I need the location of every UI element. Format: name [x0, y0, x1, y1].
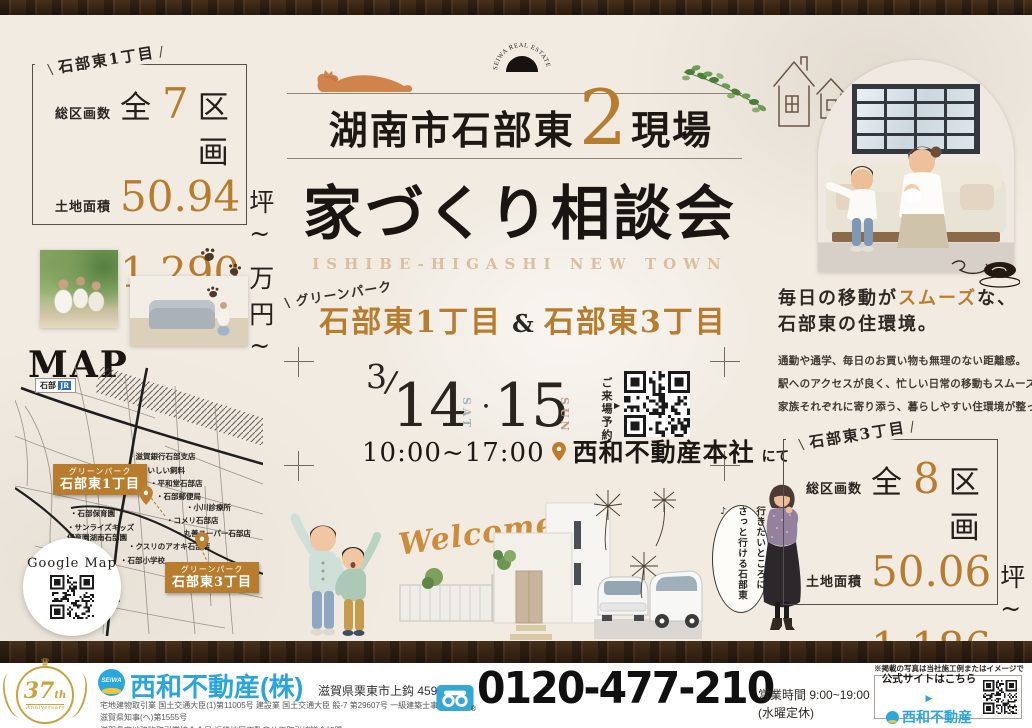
official-site-label: 公式サイトはこちら — [882, 673, 977, 685]
site1-label-text: 石部東1丁目 — [57, 43, 156, 76]
sites-names-row: 石部東1丁目&石部東3丁目 — [288, 297, 758, 341]
site1-area-row: 土地面積50.94坪~ — [55, 172, 240, 248]
area-value: 50.94 — [120, 172, 240, 221]
site3-info-box: \石部東3丁目/ 総区画数全8区画 土地面積50.06坪~ 土地価格1,186万… — [783, 439, 998, 605]
site3-label-text: 石部東3丁目 — [808, 418, 907, 451]
map-pin-icon — [139, 486, 153, 505]
map-pin-icon — [552, 442, 566, 461]
business-hours: 営業時間 9:00~19:00(水曜定休) — [758, 686, 870, 722]
area-unit: 坪~ — [1000, 558, 1025, 623]
lots-label: 総区画数 — [55, 103, 111, 122]
flyer-poster: \石部東1丁目/ 総区画数全7区画 土地面積50.94坪~ 土地価格1,290万… — [0, 0, 1032, 728]
company-name: 西和不動産(株) — [130, 667, 303, 704]
top-wood-border — [0, 0, 1032, 15]
official-site-brand: 西和不動産 — [902, 707, 972, 727]
google-map-circle: Google Map — [23, 538, 121, 636]
crop-mark — [284, 347, 314, 377]
paw-print-icon — [227, 262, 242, 277]
bottom-wood-border — [0, 641, 1032, 663]
seiwa-arc-logo: SEIWA REAL ESTATE — [490, 40, 554, 84]
event-day1: 14 — [392, 371, 466, 441]
tick-right: / — [158, 44, 167, 61]
env-headline: 毎日の移動がスムーズな、石部東の住環境。 — [778, 286, 1028, 338]
company-address: 滋賀県栗東市上鈎 459-7 — [318, 682, 448, 699]
jr-logo: JR — [58, 381, 71, 390]
footer-bar: ♛ 37th Anniversary SEIWA 西和不動産(株) 滋賀県栗東市… — [0, 663, 1032, 728]
coffee-doodle-icon — [948, 238, 1020, 292]
site3-name: 石部東3丁目 — [544, 305, 727, 340]
lots-pre: 全 — [120, 82, 153, 127]
lots-post: 区画 — [198, 82, 240, 172]
outdoor-family-photo — [40, 250, 118, 328]
event-date-block: 3 / 14 SAT ・ 15 SUN ご来場予約 ▶ 10:00~17:00 … — [292, 357, 732, 469]
tick-right: / — [909, 419, 918, 436]
lots-post: 区画 — [949, 457, 991, 547]
kids-photo — [283, 505, 385, 643]
map-landmark: 平和堂石部店 — [150, 479, 203, 489]
tick-left: \ — [798, 436, 807, 453]
date-separator-dot: ・ — [477, 393, 495, 419]
lots-value: 7 — [162, 79, 189, 128]
map-tag-site3: グリーンパーク石部東3丁目 — [165, 562, 259, 593]
ampersand: & — [502, 309, 544, 338]
tick-left: \ — [47, 61, 56, 78]
subtitle-location-row: 湖南市石部東 2 現場 — [295, 88, 747, 156]
arrow-right-icon: ▶ — [926, 694, 933, 704]
event-venue: 西和不動産本社 — [573, 433, 755, 469]
map-landmark: 石部郵便局 — [156, 492, 201, 502]
registered-mark: ® — [470, 705, 477, 713]
paw-print-icon — [206, 285, 220, 299]
event-day1-weekday: SAT — [460, 397, 473, 430]
main-title: 家づくり相談会 — [290, 166, 750, 251]
price-unit: 万円~ — [249, 259, 274, 360]
area-unit: 坪~ — [249, 183, 274, 248]
area-label: 土地面積 — [806, 571, 862, 590]
subtitle-en: ISHIBE-HIGASHI NEW TOWN — [290, 255, 750, 273]
official-site-qr-code — [983, 680, 1017, 714]
site1-name: 石部東1丁目 — [319, 305, 502, 340]
site1-info-box: \石部東1丁目/ 総区画数全7区画 土地面積50.94坪~ 土地価格1,290万… — [32, 64, 247, 225]
site1-label: \石部東1丁目/ — [34, 38, 178, 81]
livingroom-photo — [130, 276, 248, 346]
area-label: 土地面積 — [55, 196, 111, 215]
site3-area-row: 土地面積50.06坪~ — [806, 547, 991, 623]
map-landmark: 石部保育園 — [70, 509, 115, 519]
title-number: 2 — [575, 88, 631, 149]
license-text: 宅地建物取引業 国土交通大臣(1)第11005号 建設業 国土交通大臣 般-7 … — [100, 700, 460, 728]
official-site-box: 公式サイトはこちら ▶ 西和不動産 — [874, 675, 1022, 719]
crop-mark — [710, 347, 740, 377]
area-value: 50.06 — [871, 547, 991, 596]
anniversary-word: Anniversary — [26, 704, 64, 711]
seiwa-logo-icon — [886, 711, 899, 724]
map-landmark: 石部小学校 — [120, 556, 165, 566]
area-map: 石部JR 滋賀銀行石部支店 いしい飼料 平和堂石部店 石部郵便局 小川診療所 石… — [15, 366, 263, 636]
station-name: 石部 — [40, 380, 56, 391]
lots-pre: 全 — [871, 457, 904, 502]
title-post: 現場 — [631, 100, 713, 156]
map-landmark: コメリ石部店 — [166, 516, 219, 526]
site1-lots-row: 総区画数全7区画 — [55, 79, 240, 172]
dandelion-doodle-icon — [586, 486, 694, 600]
map-tag-site1: グリーンパーク石部東1丁目 — [53, 464, 147, 495]
paw-print-icon — [200, 246, 217, 263]
event-day2-weekday: SUN — [558, 397, 571, 434]
google-map-label: Google Map — [27, 556, 117, 571]
lots-value: 8 — [913, 454, 940, 503]
anniversary-37th-badge: ♛ 37th Anniversary — [16, 666, 74, 724]
event-time: 10:00~17:00 — [362, 438, 545, 468]
lots-label: 総区画数 — [806, 478, 862, 497]
freedial-icon — [436, 685, 474, 711]
map-landmark: 滋賀銀行石部支店 — [128, 452, 196, 462]
map-landmark: 小川診療所 — [186, 503, 231, 513]
crown-icon: ♛ — [18, 657, 72, 668]
map-landmark: 丸善スーパー石部店 — [176, 529, 251, 539]
title-pre: 湖南市石部東 — [329, 100, 575, 156]
environment-copy: 毎日の移動がスムーズな、石部東の住環境。 通勤や通学、毎日のお買い物も無理のない… — [778, 286, 1028, 419]
crop-mark — [284, 451, 314, 481]
station-label: 石部JR — [35, 378, 76, 393]
google-map-qr-code — [50, 575, 94, 619]
arrow-right-icon: ▶ — [614, 401, 620, 410]
event-time-row: 10:00~17:00 西和不動産本社 にて — [362, 433, 790, 469]
site3-label: \石部東3丁目/ — [785, 413, 929, 456]
phone-number: 0120-477-210 — [477, 663, 773, 714]
map-pin-icon — [195, 532, 209, 551]
env-line2: 駅へのアクセスが良く、忙しい日常の移動もスムーズ。 — [778, 373, 1028, 396]
env-line1: 通勤や通学、毎日のお買い物も無理のない距離感。 — [778, 350, 1028, 373]
site3-lots-row: 総区画数全8区画 — [806, 454, 991, 547]
reservation-qr-code — [624, 371, 690, 437]
header-rule-bottom — [287, 158, 742, 159]
seiwa-logo-icon: SEIWA — [98, 669, 125, 696]
